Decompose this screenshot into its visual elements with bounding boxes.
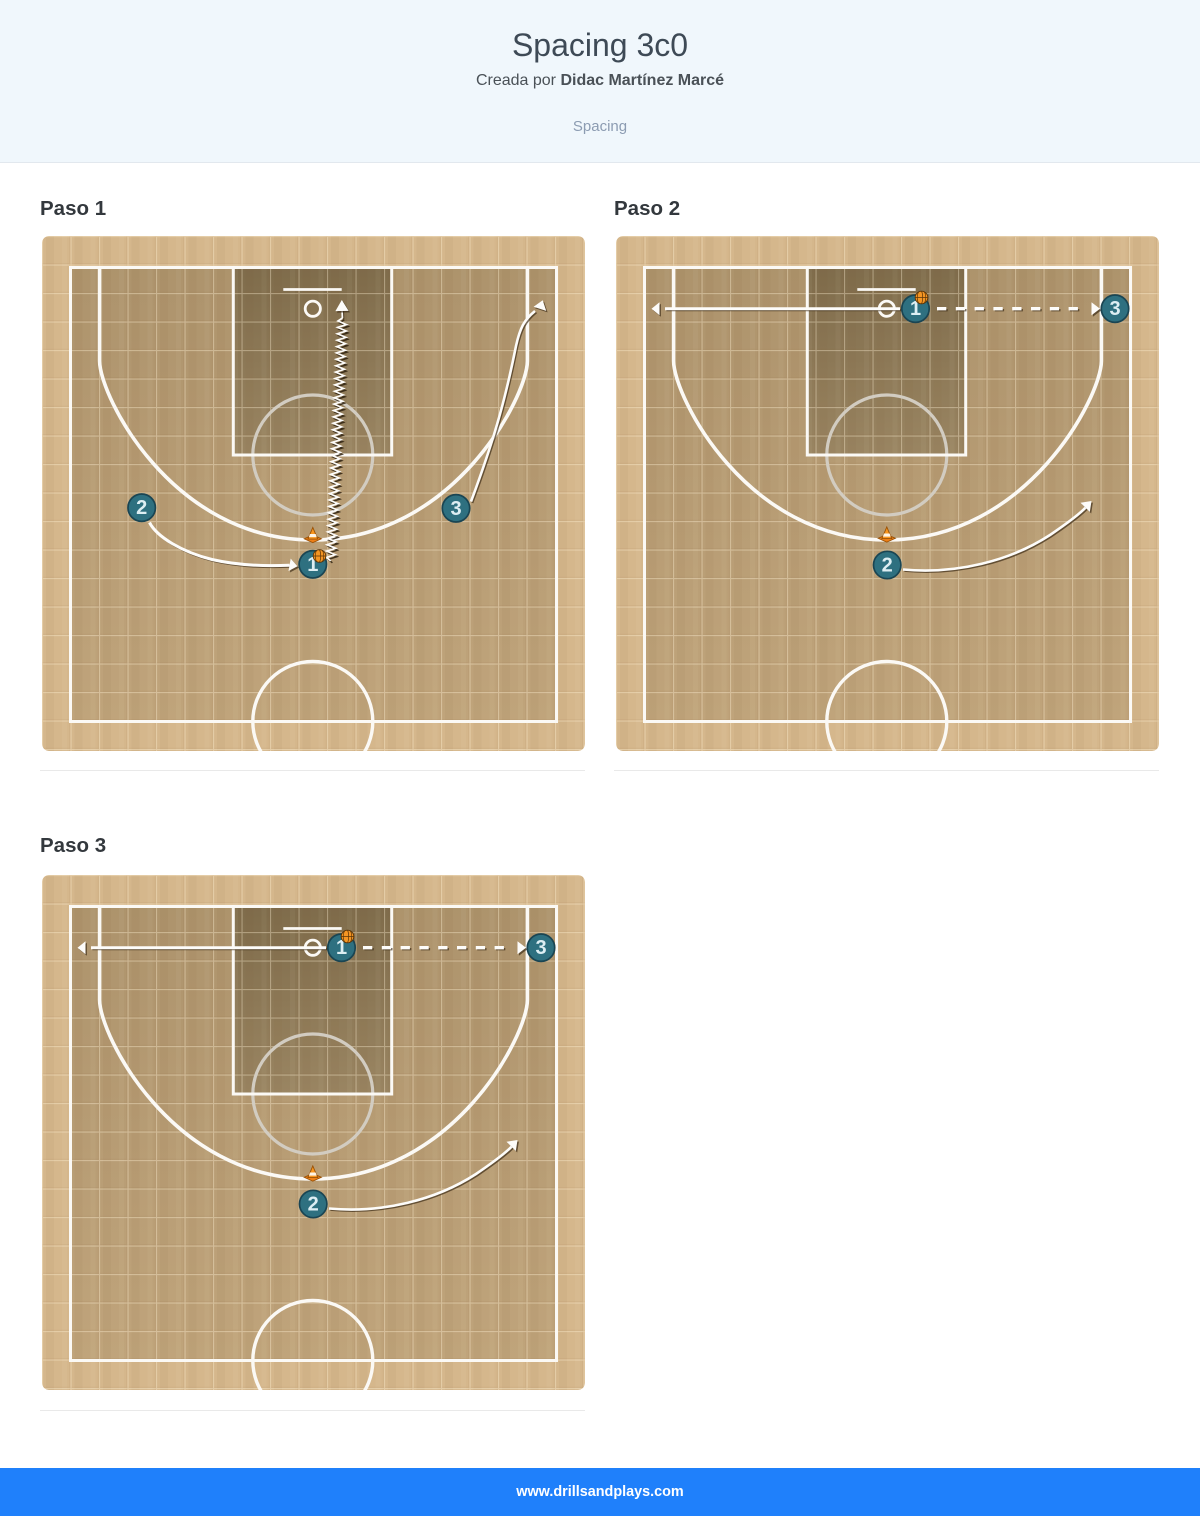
svg-text:2: 2 bbox=[136, 497, 147, 519]
svg-text:3: 3 bbox=[535, 937, 546, 959]
svg-text:3: 3 bbox=[450, 498, 461, 520]
svg-text:2: 2 bbox=[882, 555, 893, 577]
svg-text:2: 2 bbox=[308, 1194, 319, 1216]
svg-text:3: 3 bbox=[1109, 298, 1120, 320]
